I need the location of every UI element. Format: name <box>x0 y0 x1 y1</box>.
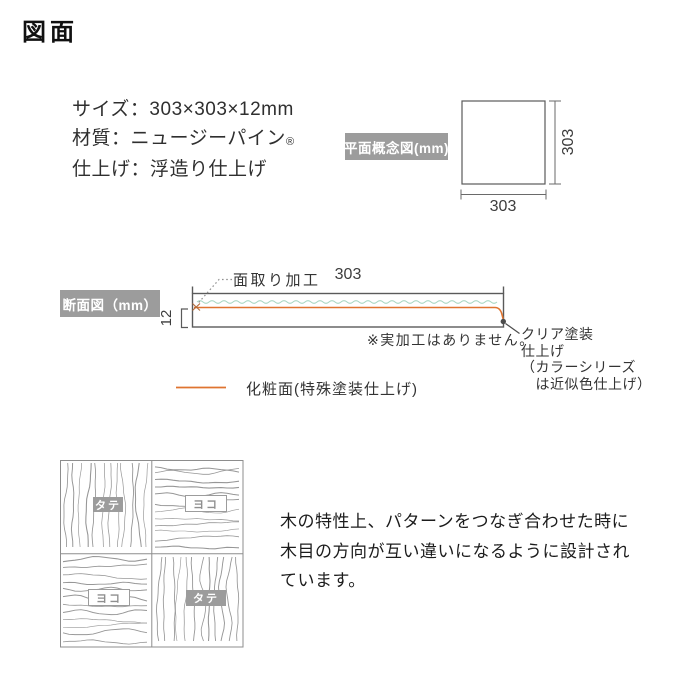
coating-note: クリア塗装 仕上げ （カラーシリーズ は近似色仕上げ） <box>521 326 680 392</box>
spec-list: サイズ：303×303×12mm 材質：ニュージーパイン® 仕上げ：浮造り仕上げ <box>72 96 294 185</box>
no-processing-note: ※実加工はありません。 <box>367 330 535 350</box>
coating-callout-dot <box>501 319 506 324</box>
section-panel <box>193 294 504 328</box>
wood-grain-line <box>86 463 91 547</box>
wood-grain-line <box>173 557 175 641</box>
chamfer-mark <box>193 304 201 311</box>
grain-badge-horizontal-2: ヨコ <box>88 589 130 606</box>
wood-grain-line <box>131 463 134 547</box>
section-dim-thickness: 12 <box>159 298 175 338</box>
wood-grain-line <box>63 640 147 644</box>
thickness-bracket <box>182 309 189 328</box>
wood-grain-line <box>63 629 147 635</box>
wood-grain-line <box>155 518 239 521</box>
registered-mark: ® <box>286 136 294 148</box>
plan-dim-width: 303 <box>483 199 523 215</box>
spec-material-text: 材質：ニュージーパイン <box>72 128 286 149</box>
texture-wave-line <box>197 301 497 304</box>
wood-grain-line <box>63 564 147 567</box>
wood-grain-line <box>155 479 239 483</box>
plan-dim-height: 303 <box>561 122 577 162</box>
page-title: 図面 <box>22 12 78 47</box>
wood-grain-line <box>143 463 148 547</box>
wood-grain-line <box>157 557 162 641</box>
section-view-label: 断面図（mm） <box>60 290 160 317</box>
wood-grain-line <box>71 463 73 547</box>
grain-badge-vertical-2: タテ <box>186 590 226 606</box>
wood-grain-line <box>155 529 239 532</box>
wood-grain-line <box>236 557 239 641</box>
wood-grain-line <box>63 610 147 615</box>
chamfer-label: 面取り加工 <box>233 269 321 290</box>
wood-grain-line <box>155 486 239 488</box>
pattern-grid <box>61 461 244 648</box>
plan-view-label: 平面概念図(mm) <box>345 133 448 160</box>
spec-material: 材質：ニュージーパイン® <box>72 125 294 157</box>
wood-grain-line <box>176 557 182 641</box>
wood-grain-line <box>63 619 147 624</box>
wood-grain-line <box>63 574 147 580</box>
wood-grain-line <box>63 623 147 628</box>
wood-grain-line <box>78 463 81 547</box>
chamfer-leader-line <box>197 280 232 305</box>
wood-grain-line <box>63 582 147 584</box>
legend-label: 化粧面(特殊塗装仕上げ) <box>246 378 418 399</box>
wood-grain-line <box>155 468 239 474</box>
section-dim-width: 303 <box>328 267 368 283</box>
wood-grain-line <box>155 546 239 549</box>
wood-grain-line <box>155 536 239 542</box>
wood-grain-line <box>226 557 232 641</box>
wood-grain-line <box>155 522 239 526</box>
wood-grain-line <box>63 557 147 562</box>
spec-size: サイズ：303×303×12mm <box>72 96 294 125</box>
wood-grain-line <box>155 467 239 472</box>
drawing-page: 図面 サイズ：303×303×12mm 材質：ニュージーパイン® 仕上げ：浮造り… <box>0 0 680 680</box>
grain-badge-vertical-1: タテ <box>93 497 123 512</box>
pattern-description: 木の特性上、パターンをつなぎ合わせた時に 木目の方向が互い違いになるように設計さ… <box>280 507 672 596</box>
wood-grain-line <box>64 463 68 547</box>
wood-grain-line <box>135 463 141 547</box>
grain-badge-horizontal-1: ヨコ <box>185 495 227 512</box>
plan-square <box>462 101 545 184</box>
wood-grain-line <box>163 557 165 641</box>
spec-finish: 仕上げ：浮造り仕上げ <box>72 156 294 185</box>
wood-grain <box>63 463 239 644</box>
decorative-face-line <box>194 308 503 320</box>
